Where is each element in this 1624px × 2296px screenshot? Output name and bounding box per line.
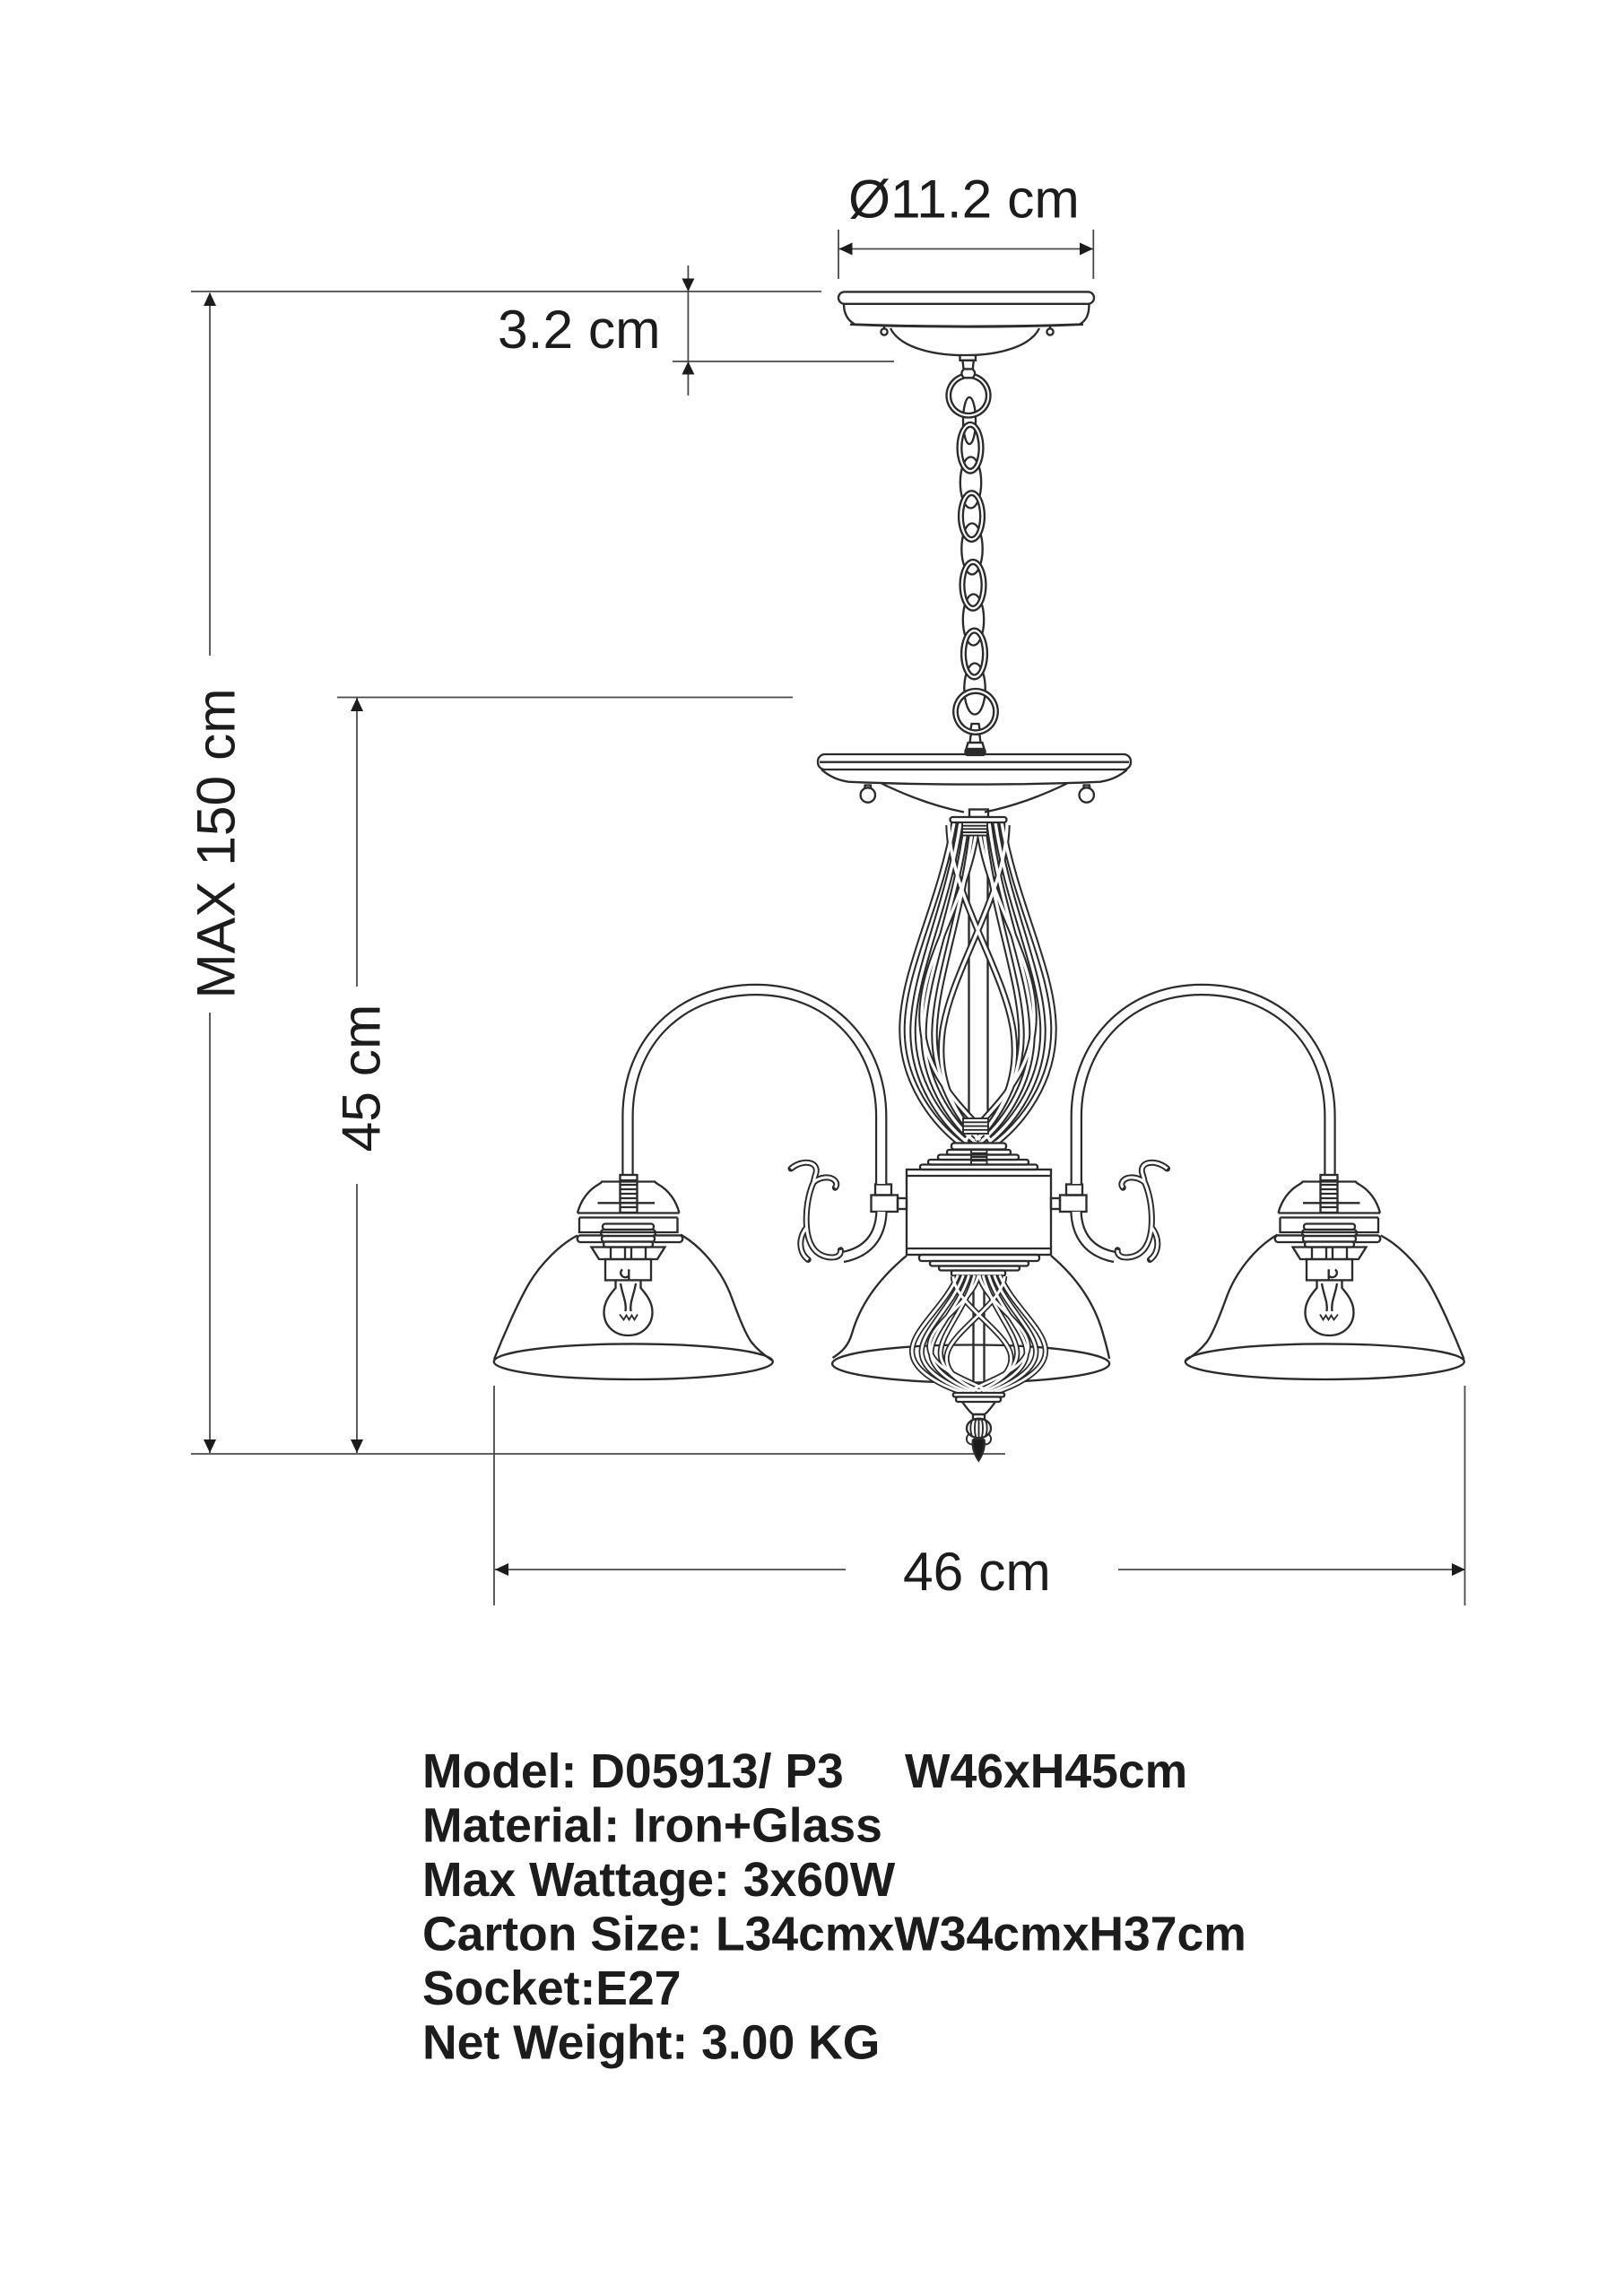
svg-text:MAX 150 cm: MAX 150 cm [186, 688, 247, 998]
svg-text:Socket:E27: Socket:E27 [422, 1962, 681, 2015]
svg-text:W46xH45cm: W46xH45cm [905, 1745, 1187, 1798]
svg-text:45 cm: 45 cm [331, 1004, 392, 1152]
svg-text:Carton Size: L34cmxW34cmxH37cm: Carton Size: L34cmxW34cmxH37cm [422, 1909, 1246, 1961]
svg-text:Net Weight: 3.00 KG: Net Weight: 3.00 KG [422, 2017, 880, 2070]
svg-text:46 cm: 46 cm [903, 1541, 1051, 1602]
svg-text:3.2 cm: 3.2 cm [498, 299, 661, 360]
svg-text:Material: Iron+Glass: Material: Iron+Glass [422, 1800, 882, 1853]
svg-text:Ø11.2 cm: Ø11.2 cm [848, 169, 1080, 230]
svg-text:Model: D05913/ P3: Model: D05913/ P3 [422, 1745, 844, 1798]
svg-text:Max Wattage: 3x60W: Max Wattage: 3x60W [422, 1854, 896, 1907]
